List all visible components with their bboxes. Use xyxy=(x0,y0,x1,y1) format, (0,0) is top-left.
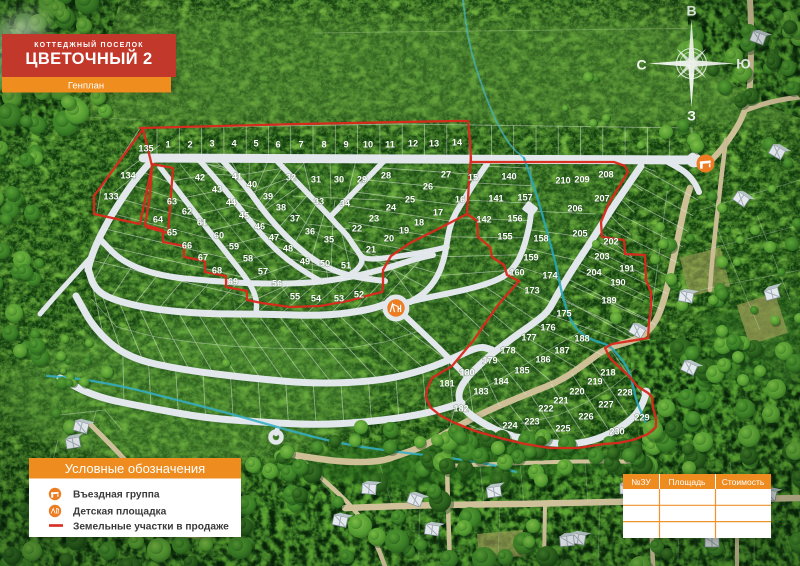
svg-text:Детская площадка: Детская площадка xyxy=(73,507,167,518)
svg-text:КОТТЕДЖНЫЙ ПОСЕЛОК: КОТТЕДЖНЫЙ ПОСЕЛОК xyxy=(34,40,144,49)
svg-text:Условные обозначения: Условные обозначения xyxy=(65,461,205,476)
svg-text:Стоимость: Стоимость xyxy=(722,477,765,487)
svg-text:Генплан: Генплан xyxy=(68,81,104,92)
svg-text:Площадь: Площадь xyxy=(668,477,706,487)
svg-text:ЦВЕТОЧНЫЙ 2: ЦВЕТОЧНЫЙ 2 xyxy=(25,49,152,68)
svg-text:№ЗУ: №ЗУ xyxy=(631,477,651,487)
svg-text:Въездная группа: Въездная группа xyxy=(73,490,160,501)
svg-text:Земельные участки в продаже: Земельные участки в продаже xyxy=(73,522,229,533)
